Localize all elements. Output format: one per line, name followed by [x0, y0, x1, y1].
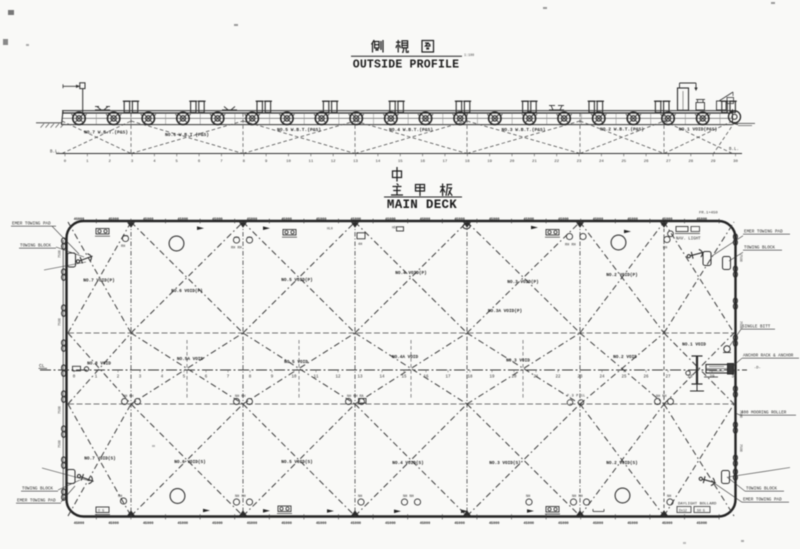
svg-text:45000: 45000 — [524, 218, 535, 222]
svg-text:14: 14 — [379, 376, 385, 380]
svg-text:19: 19 — [489, 376, 495, 380]
svg-text:20: 20 — [510, 160, 515, 164]
svg-text:30: 30 — [733, 160, 738, 164]
svg-text:NO.8 VOID: NO.8 VOID — [87, 362, 111, 367]
svg-text:NO.4 W.B.T.(P&S): NO.4 W.B.T.(P&S) — [389, 127, 433, 133]
svg-text:18: 18 — [465, 160, 470, 164]
svg-text:45000: 45000 — [489, 218, 500, 222]
svg-text:21: 21 — [533, 376, 539, 380]
svg-text:45000: 45000 — [524, 522, 535, 526]
svg-text:NH NH: NH NH — [235, 495, 246, 499]
svg-text:45000: 45000 — [178, 218, 189, 222]
svg-text:45000: 45000 — [108, 218, 119, 222]
svg-text:DAYLIGHT BOLLARD: DAYLIGHT BOLLARD — [678, 503, 717, 507]
svg-text:-D-: -D- — [754, 367, 761, 371]
svg-text:26: 26 — [644, 160, 649, 164]
svg-text:TOWING BLOCK: TOWING BLOCK — [746, 487, 777, 492]
svg-text:TOWING BLOCK: TOWING BLOCK — [20, 244, 51, 249]
svg-text:45000: 45000 — [454, 522, 465, 526]
svg-text:26: 26 — [643, 376, 649, 380]
svg-text:15: 15 — [398, 160, 403, 164]
svg-text:22: 22 — [554, 160, 559, 164]
svg-text:23: 23 — [577, 160, 582, 164]
svg-text:1:100: 1:100 — [464, 54, 474, 58]
svg-text:45000: 45000 — [662, 218, 673, 222]
svg-text:NO.7 VOID(P): NO.7 VOID(P) — [83, 279, 115, 284]
svg-text:NO.6 W.B.T.(P&S): NO.6 W.B.T.(P&S) — [165, 132, 209, 138]
svg-text:FR.1+450: FR.1+450 — [699, 212, 718, 216]
svg-text:12: 12 — [335, 376, 341, 380]
svg-text:HD: HD — [392, 225, 396, 229]
svg-text:NO.7 W.B.T.(P&S): NO.7 W.B.T.(P&S) — [84, 130, 128, 136]
svg-text:45000: 45000 — [74, 218, 85, 222]
svg-text:NO.2 VOID(S): NO.2 VOID(S) — [606, 461, 638, 466]
svg-text:30: 30 — [731, 376, 737, 380]
svg-text:45000: 45000 — [281, 522, 292, 526]
svg-text:23: 23 — [577, 376, 583, 380]
svg-text:MAIN DECK: MAIN DECK — [387, 198, 457, 212]
svg-text:NO.3 W.B.T.(P&S): NO.3 W.B.T.(P&S) — [501, 127, 545, 133]
svg-text:OUTSIDE PROFILE: OUTSIDE PROFILE — [353, 59, 460, 72]
svg-text:45000: 45000 — [697, 522, 708, 526]
svg-text:45000: 45000 — [627, 522, 638, 526]
svg-text:RH: RH — [121, 245, 125, 249]
svg-text:EMER TOWING PAD: EMER TOWING PAD — [744, 230, 783, 235]
svg-text:10: 10 — [291, 376, 297, 380]
svg-text:13: 13 — [357, 376, 363, 380]
svg-text:Dx12: Dx12 — [679, 508, 687, 512]
svg-text:45000: 45000 — [143, 218, 154, 222]
svg-text:45000: 45000 — [247, 218, 258, 222]
svg-text:RH RH: RH RH — [565, 244, 576, 248]
svg-text:45000: 45000 — [593, 218, 604, 222]
svg-text:NO.4 VOID(P): NO.4 VOID(P) — [395, 271, 427, 276]
svg-text:22: 22 — [555, 376, 561, 380]
svg-text:45000: 45000 — [697, 218, 708, 222]
svg-text:17: 17 — [445, 376, 451, 380]
svg-text:NO.5 VOID(S): NO.5 VOID(S) — [281, 460, 313, 465]
svg-text:29: 29 — [709, 376, 715, 380]
svg-text:50 G: 50 G — [697, 508, 705, 512]
svg-text:45000: 45000 — [593, 522, 604, 526]
svg-text:45000: 45000 — [385, 218, 396, 222]
svg-text:NO.2 VOID: NO.2 VOID — [613, 355, 637, 360]
svg-text:7500: 7500 — [58, 318, 62, 326]
svg-text:NO.4A VOID: NO.4A VOID — [392, 355, 419, 360]
svg-text:NO.3 VOID(P): NO.3 VOID(P) — [507, 280, 539, 285]
svg-text:NH NH: NH NH — [403, 495, 414, 499]
svg-text:11: 11 — [308, 160, 313, 164]
svg-text:21: 21 — [532, 160, 537, 164]
svg-text:400 MOORING ROLLER: 400 MOORING ROLLER — [741, 412, 787, 416]
svg-text:4H: 4H — [358, 243, 362, 247]
svg-text:45000: 45000 — [316, 218, 327, 222]
svg-text:45000: 45000 — [212, 522, 223, 526]
svg-text:45000: 45000 — [351, 522, 362, 526]
svg-text:O G: O G — [98, 510, 104, 514]
svg-text:29: 29 — [711, 160, 716, 164]
svg-text:NH NH: NH NH — [656, 395, 667, 399]
svg-text:45000: 45000 — [74, 522, 85, 526]
svg-text:13: 13 — [353, 160, 358, 164]
svg-text:NO.2 VOID(P): NO.2 VOID(P) — [606, 273, 638, 278]
svg-text:7500: 7500 — [58, 250, 62, 258]
svg-text:EMER TOWING PAD: EMER TOWING PAD — [743, 498, 782, 503]
svg-text:28: 28 — [688, 160, 693, 164]
svg-text:25: 25 — [621, 376, 627, 380]
svg-text:45000: 45000 — [178, 522, 189, 526]
svg-text:45000: 45000 — [351, 218, 362, 222]
svg-text:HLH: HLH — [327, 226, 333, 230]
svg-text:NO.3 VOID(S): NO.3 VOID(S) — [489, 461, 521, 466]
svg-text:24: 24 — [599, 160, 604, 164]
svg-text:19: 19 — [487, 160, 492, 164]
svg-text:NH: NH — [358, 495, 362, 499]
svg-text:7500: 7500 — [58, 440, 62, 448]
svg-text:45000: 45000 — [212, 218, 223, 222]
svg-text:18: 18 — [467, 376, 473, 380]
svg-text:45000: 45000 — [454, 218, 465, 222]
svg-text:NO.3 VOID: NO.3 VOID — [506, 359, 530, 364]
svg-text:45000: 45000 — [558, 218, 569, 222]
svg-text:15: 15 — [401, 376, 407, 380]
svg-text:EMER TOWING PAD: EMER TOWING PAD — [12, 222, 51, 227]
svg-text:45000: 45000 — [489, 522, 500, 526]
svg-text:45000: 45000 — [420, 218, 431, 222]
svg-text:16: 16 — [420, 160, 425, 164]
svg-text:45000: 45000 — [108, 522, 119, 526]
svg-text:27: 27 — [666, 160, 671, 164]
svg-text:NH NH: NH NH — [235, 395, 246, 399]
svg-text:24: 24 — [599, 376, 605, 380]
svg-text:NH NH: NH NH — [572, 495, 583, 499]
svg-text:45000: 45000 — [281, 218, 292, 222]
svg-text:45000: 45000 — [247, 522, 258, 526]
svg-text:NH: NH — [118, 495, 122, 499]
svg-text:NH NH: NH NH — [347, 395, 358, 399]
svg-text:45000: 45000 — [627, 218, 638, 222]
svg-text:TOWING BLOCK: TOWING BLOCK — [22, 487, 53, 492]
svg-text:7500: 7500 — [739, 444, 743, 452]
svg-text:TOWING BLOCK: TOWING BLOCK — [744, 246, 775, 251]
svg-text:NH: NH — [667, 495, 671, 499]
svg-text:45000: 45000 — [385, 522, 396, 526]
svg-text:45000: 45000 — [420, 522, 431, 526]
svg-text:NO.6 VOID(P): NO.6 VOID(P) — [171, 289, 203, 294]
svg-text:27: 27 — [665, 376, 671, 380]
svg-text:F.3 P.1L: F.3 P.1L — [567, 395, 586, 399]
svg-text:16: 16 — [423, 376, 429, 380]
svg-text:45000: 45000 — [662, 522, 673, 526]
svg-text:NO.5 VOID(P): NO.5 VOID(P) — [281, 278, 313, 283]
svg-text:NH NH: NH NH — [123, 395, 134, 399]
svg-text:7500: 7500 — [739, 254, 743, 262]
svg-text:NO.5A VOID: NO.5A VOID — [177, 357, 204, 362]
svg-text:SINGLE BITT: SINGLE BITT — [742, 325, 771, 330]
svg-text:45000: 45000 — [558, 522, 569, 526]
svg-text:28: 28 — [687, 376, 693, 380]
svg-text:17: 17 — [443, 160, 448, 164]
svg-text:RH: RH — [663, 247, 667, 251]
svg-text:10: 10 — [286, 160, 291, 164]
svg-text:NO.5 W.B.T.(P&S): NO.5 W.B.T.(P&S) — [277, 127, 321, 133]
svg-text:ANCHOR RACK & ANCHOR: ANCHOR RACK & ANCHOR — [743, 355, 794, 359]
svg-text:NO.6 VOID(S): NO.6 VOID(S) — [174, 460, 206, 465]
svg-text:14: 14 — [375, 160, 380, 164]
svg-text:12: 12 — [331, 160, 336, 164]
svg-text:B.L.: B.L. — [50, 150, 60, 154]
svg-text:NAV. LIGHT: NAV. LIGHT — [676, 238, 701, 242]
svg-text:RH RH: RH RH — [231, 247, 242, 251]
svg-text:25: 25 — [621, 160, 626, 164]
svg-text:NO.5 VOID: NO.5 VOID — [284, 360, 308, 365]
svg-text:B.L.: B.L. — [729, 148, 739, 152]
svg-text:NO.1 VOID: NO.1 VOID — [682, 343, 706, 348]
svg-text:20: 20 — [511, 376, 517, 380]
svg-text:11: 11 — [313, 376, 319, 380]
svg-text:NO.7 VOID(S): NO.7 VOID(S) — [84, 457, 116, 462]
svg-text:NO.2 W.B.T.(P&S): NO.2 W.B.T.(P&S) — [600, 127, 644, 133]
svg-text:NO.3A VOID(P): NO.3A VOID(P) — [488, 309, 522, 314]
svg-text:NO.1 VOID(P&S): NO.1 VOID(P&S) — [679, 127, 718, 133]
svg-text:7500: 7500 — [58, 406, 62, 414]
svg-text:EMER TOWING PAD: EMER TOWING PAD — [17, 499, 56, 504]
svg-text:45000: 45000 — [143, 522, 154, 526]
svg-text:NH: NH — [526, 495, 530, 499]
svg-text:45000: 45000 — [316, 522, 327, 526]
svg-text:NO.4 VOID(S): NO.4 VOID(S) — [392, 461, 424, 466]
